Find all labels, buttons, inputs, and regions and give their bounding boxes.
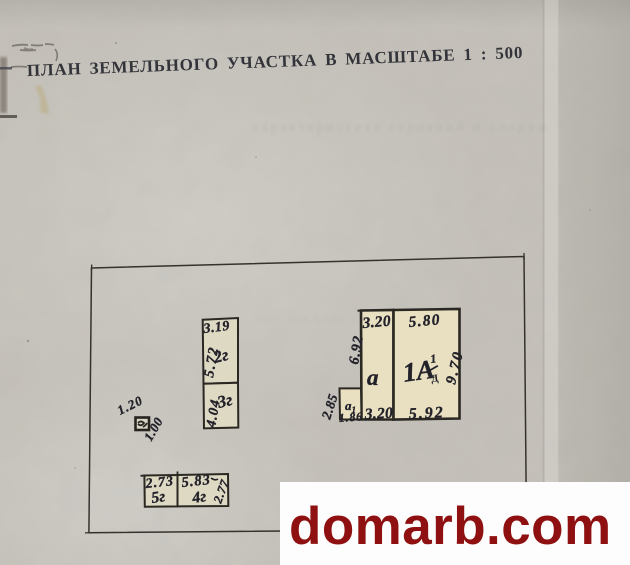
svg-text:4г: 4г: [190, 488, 207, 507]
svg-text:ветх печ кирп: ветх печ кирп: [255, 313, 345, 325]
svg-text:domarb.com: domarb.com: [289, 497, 612, 556]
svg-text:5.92: 5.92: [408, 404, 445, 423]
svg-text:5.80: 5.80: [408, 311, 442, 331]
svg-text:а: а: [367, 365, 379, 390]
svg-text:5.83: 5.83: [181, 472, 212, 491]
svg-text:5г: 5г: [150, 488, 166, 507]
svg-text:характеристика строений и соор: характеристика строений и сооруж: [252, 119, 550, 134]
svg-text:3.20: 3.20: [361, 313, 392, 332]
svg-text:3.20: 3.20: [363, 405, 393, 424]
